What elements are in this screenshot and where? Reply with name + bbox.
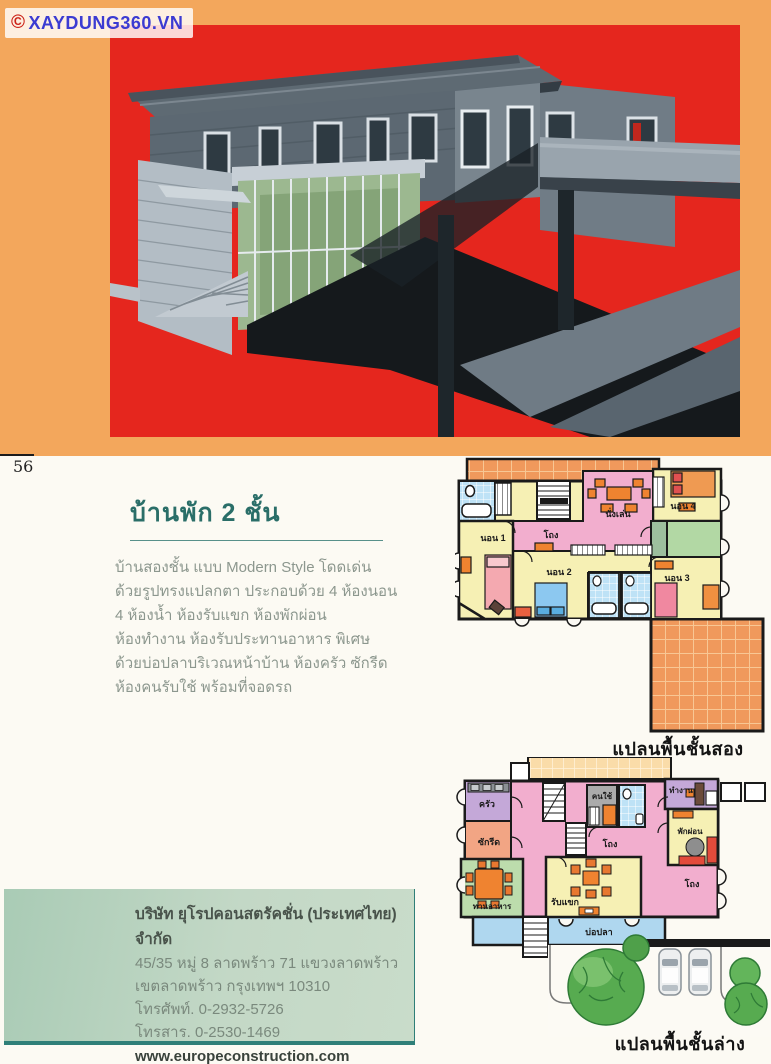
svg-text:นอน 1: นอน 1 — [480, 533, 505, 543]
staircase-mid — [566, 823, 586, 855]
tree — [623, 935, 649, 961]
article-body: บ้านสองชั้น แบบ Modern Style โดดเด่น ด้ว… — [115, 556, 445, 700]
svg-text:ครัว: ครัว — [479, 799, 495, 809]
svg-text:โถง: โถง — [684, 878, 700, 889]
svg-text:ทำงาน: ทำงาน — [669, 786, 693, 795]
room-relax — [668, 809, 718, 865]
ground-floor-plan: ครัว ซักรีด ทานอาหาร รับแขก โถง คนใช้ ทำ… — [453, 757, 771, 1042]
body-line: ห้องทำงาน ห้องรับประทานอาหาร พิเศษ — [115, 628, 445, 652]
body-line: บ้านสองชั้น แบบ Modern Style โดดเด่น — [115, 556, 445, 580]
porch — [511, 763, 529, 781]
room-bath-3 — [622, 573, 651, 618]
car — [689, 949, 711, 995]
svg-text:คนใช้: คนใช้ — [592, 791, 613, 801]
company-name: บริษัท ยุโรปคอนสตรัคชั่น (ประเทศไทย) จำก… — [135, 902, 414, 952]
front-wall — [643, 940, 769, 946]
staircase-up — [543, 783, 565, 821]
address-line-2: เขตลาดพร้าว กรุงเทพฯ 10310 — [135, 975, 414, 998]
svg-text:บ่อปลา: บ่อปลา — [585, 927, 612, 937]
contact-box: บริษัท ยุโรปคอนสตรัคชั่น (ประเทศไทย) จำก… — [4, 889, 415, 1045]
terrace-tiled — [651, 612, 763, 731]
closet — [495, 483, 511, 515]
house-render — [110, 25, 740, 437]
magazine-page: © XAYDUNG360.VN 56 บ้านพัก 2 ชั้น บ้านสอ… — [0, 0, 771, 1064]
body-line: ห้องคนรับใช้ พร้อมที่จอดรถ — [115, 676, 445, 700]
copyright-icon: © — [11, 12, 26, 34]
website-url: www.europeconstruction.com — [135, 1044, 414, 1064]
contact-info: บริษัท ยุโรปคอนสตรัคชั่น (ประเทศไทย) จำก… — [4, 889, 414, 1064]
house-render-svg — [110, 25, 740, 437]
watermark: © XAYDUNG360.VN — [5, 8, 193, 38]
phone-number: โทรศัพท์. 0-2932-5726 — [135, 998, 414, 1021]
second-floor-plan: นอน 1 นอน 2 นอน 3 นอน 4 โถง นั่งเล่น — [455, 457, 771, 740]
wardrobe — [571, 545, 605, 555]
staircase — [537, 481, 570, 519]
svg-text:ทานอาหาร: ทานอาหาร — [473, 902, 512, 911]
body-line: ด้วยบ่อปลาบริเวณหน้าบ้าน ห้องครัว ซักรีด — [115, 652, 445, 676]
porch-column — [721, 783, 741, 801]
svg-text:นอน 4: นอน 4 — [670, 501, 695, 511]
porch-column — [745, 783, 765, 801]
wardrobe — [615, 545, 652, 555]
staircase-entry — [523, 917, 548, 957]
address-line-1: 45/35 หมู่ 8 ลาดพร้าว 71 แขวงลาดพร้าว — [135, 952, 414, 975]
room-bath-ground — [619, 785, 645, 827]
room-dressing — [667, 521, 721, 557]
watermark-text: XAYDUNG360.VN — [29, 13, 184, 34]
rear-terrace — [528, 757, 671, 779]
vestibule — [651, 521, 667, 557]
svg-text:นั่งเล่น: นั่งเล่น — [605, 507, 631, 519]
svg-text:พักผ่อน: พักผ่อน — [677, 827, 703, 836]
page-title: บ้านพัก 2 ชั้น — [130, 493, 383, 541]
svg-text:นอน 2: นอน 2 — [546, 567, 571, 577]
body-line: ด้วยรูปทรงแปลกตา ประกอบด้วย 4 ห้องนอน — [115, 580, 445, 604]
fax-number: โทรสาร. 0-2530-1469 — [135, 1021, 414, 1044]
ground-floor-caption: แปลนพื้นชั้นล่าง — [560, 1029, 771, 1058]
body-line: 4 ห้องน้ำ ห้องรับแขก ห้องพักผ่อน — [115, 604, 445, 628]
page-number: 56 — [13, 457, 33, 476]
room-living — [546, 857, 641, 919]
wardrobe — [653, 477, 664, 507]
car — [659, 949, 681, 995]
page-number-rule — [0, 454, 34, 456]
svg-text:โถง: โถง — [602, 838, 618, 849]
svg-text:รับแขก: รับแขก — [551, 897, 579, 907]
svg-text:นอน 3: นอน 3 — [664, 573, 689, 583]
room-bath-1 — [459, 481, 495, 521]
room-bath-2 — [589, 573, 619, 618]
svg-text:ซักรีด: ซักรีด — [478, 837, 500, 847]
render-bridge — [538, 137, 740, 199]
tree — [725, 983, 767, 1025]
svg-text:โถง: โถง — [543, 529, 559, 540]
